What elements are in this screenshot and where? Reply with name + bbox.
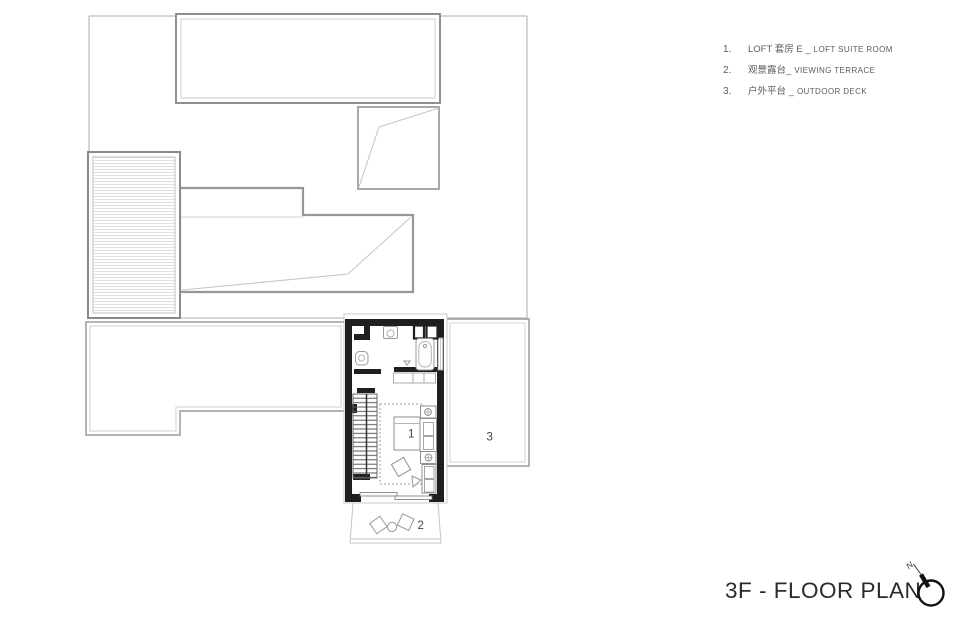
legend-label-zh: 观景露台_ bbox=[748, 62, 791, 76]
wardrobe-cell-1 bbox=[424, 423, 434, 436]
legend-label-en: LOFT SUITE ROOM bbox=[814, 45, 893, 54]
legend-label-en: VIEWING TERRACE bbox=[794, 66, 875, 75]
terrace-table bbox=[387, 522, 396, 531]
legend-number: 3. bbox=[723, 86, 748, 97]
staircase bbox=[353, 394, 377, 478]
floor-plan-sheet: 1 2 3 1. LOFT 套房 E _ LOFT SUITE ROOM 2. … bbox=[0, 0, 960, 617]
wall-closet-h bbox=[354, 334, 370, 340]
louver-roof bbox=[88, 152, 180, 318]
legend-label-en: OUTDOOR DECK bbox=[797, 87, 867, 96]
label-loft-suite: 1 bbox=[408, 429, 414, 441]
north-compass-icon: N bbox=[903, 556, 955, 614]
terrace-chair-1 bbox=[370, 516, 387, 533]
sloped-roof-panel bbox=[358, 107, 439, 189]
legend-item-outdoor-deck: 3. 户外平台 _ OUTDOOR DECK bbox=[723, 83, 893, 96]
legend-label-zh: 户外平台 _ bbox=[748, 83, 794, 97]
wall-stair-top bbox=[357, 388, 375, 393]
wardrobe-cell-2 bbox=[424, 437, 434, 450]
terrace-furniture bbox=[370, 514, 414, 534]
legend-number: 1. bbox=[723, 44, 748, 55]
label-viewing-terrace: 2 bbox=[418, 520, 424, 532]
skylight-roof bbox=[176, 14, 440, 103]
wall-left bbox=[345, 319, 352, 502]
legend-label-zh: LOFT 套房 E _ bbox=[748, 41, 811, 55]
stepped-roof bbox=[180, 188, 413, 292]
wall-bottom-left bbox=[345, 494, 361, 502]
sofa-cushion-1 bbox=[425, 467, 435, 479]
legend: 1. LOFT 套房 E _ LOFT SUITE ROOM 2. 观景露台_ … bbox=[723, 41, 893, 104]
toilet-bowl bbox=[359, 355, 365, 361]
left-terrace bbox=[86, 322, 345, 435]
legend-item-viewing-terrace: 2. 观景露台_ VIEWING TERRACE bbox=[723, 62, 893, 75]
shower-cell-2 bbox=[427, 326, 438, 339]
bathtub-drain bbox=[423, 344, 426, 347]
sheet-title: 3F - FLOOR PLAN bbox=[725, 578, 921, 604]
outdoor-deck bbox=[446, 319, 529, 466]
legend-item-loft-suite: 1. LOFT 套房 E _ LOFT SUITE ROOM bbox=[723, 41, 893, 54]
viewing-terrace bbox=[350, 503, 441, 543]
legend-number: 2. bbox=[723, 65, 748, 76]
label-outdoor-deck: 3 bbox=[487, 432, 493, 444]
terrace-chair-2 bbox=[397, 514, 414, 531]
wall-wc bbox=[354, 369, 381, 374]
sofa-cushion-2 bbox=[425, 480, 435, 493]
washbasin-bowl bbox=[387, 330, 394, 337]
vanity-counter bbox=[394, 373, 436, 383]
shower-cell-1 bbox=[414, 326, 424, 339]
right-wall-window bbox=[438, 338, 443, 370]
